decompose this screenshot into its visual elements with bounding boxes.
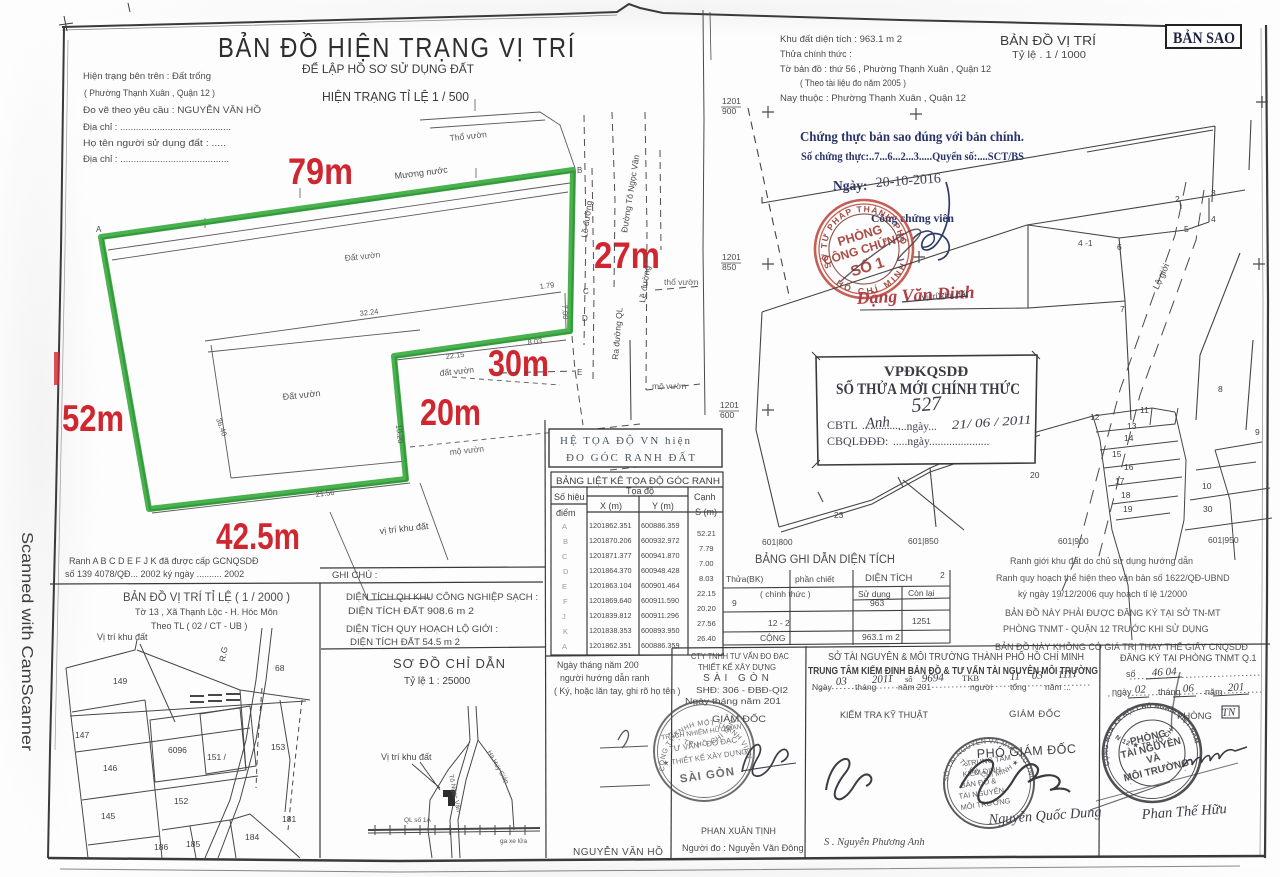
svg-text:Đo vẽ theo yêu cầu : NGUYỄN V: Đo vẽ theo yêu cầu : NGUYỄN VĂN HỒ xyxy=(83,104,261,115)
svg-text:26.40: 26.40 xyxy=(697,634,716,643)
svg-text:DIỆN TÍCH ĐẤT 54.5 m 2: DIỆN TÍCH ĐẤT 54.5 m 2 xyxy=(350,637,460,647)
svg-text:DIỆN TÍCH QH KHU CÔNG NGHIỆP S: DIỆN TÍCH QH KHU CÔNG NGHIỆP SẠCH : xyxy=(346,592,538,603)
svg-text:15: 15 xyxy=(1112,449,1122,459)
svg-text:( Phường Thạnh Xuân , Quận 12: ( Phường Thạnh Xuân , Quận 12 ) xyxy=(84,88,215,98)
svg-text:06: 06 xyxy=(1183,682,1195,695)
svg-text:CỘNG: CỘNG xyxy=(760,633,786,643)
svg-text:TRUNG TÂM KIỂM ĐỊNH BẢN ĐỒ & T: TRUNG TÂM KIỂM ĐỊNH BẢN ĐỒ & TƯ VẤN TÀI … xyxy=(808,665,1098,677)
svg-text:Ngày: Ngày xyxy=(812,682,833,692)
svg-text:D: D xyxy=(582,314,588,323)
svg-text:1201862.351: 1201862.351 xyxy=(589,641,632,650)
svg-text:C: C xyxy=(583,287,589,296)
svg-text:1.79: 1.79 xyxy=(539,280,555,291)
svg-text:600941.870: 600941.870 xyxy=(641,551,680,560)
svg-text:14: 14 xyxy=(1124,433,1134,443)
svg-text:CTY TNHH TƯ VẤN ĐO ĐẠC: CTY TNHH TƯ VẤN ĐO ĐẠC xyxy=(691,651,789,661)
svg-text:X (m): X (m) xyxy=(600,501,622,511)
svg-text:20.20: 20.20 xyxy=(697,604,716,613)
svg-text:23: 23 xyxy=(834,510,844,520)
svg-text:153: 153 xyxy=(271,742,285,752)
svg-text:850: 850 xyxy=(722,262,736,272)
svg-text:1201: 1201 xyxy=(720,400,739,410)
svg-text:Khu đất diện tích : 963.1 m: Khu đất diện tích : 963.1 m 2 xyxy=(780,34,902,44)
svg-text:601|950: 601|950 xyxy=(1208,535,1239,545)
svg-text:600901.464: 600901.464 xyxy=(641,581,680,590)
svg-text:7.79: 7.79 xyxy=(699,544,714,553)
svg-text:BẢN SAO: BẢN SAO xyxy=(1173,30,1235,47)
svg-text:CBQLĐĐĐ:: CBQLĐĐĐ: xyxy=(827,434,888,448)
svg-text:186: 186 xyxy=(154,842,168,852)
svg-text:Họ tên người sử dụng đất : ...: Họ tên người sử dụng đất : ..... xyxy=(83,138,226,148)
svg-text:1251: 1251 xyxy=(912,616,931,626)
svg-text:6: 6 xyxy=(1117,242,1122,252)
svg-text:1201869.640: 1201869.640 xyxy=(589,596,632,605)
svg-text:1201838.353: 1201838.353 xyxy=(589,626,632,635)
svg-text:03: 03 xyxy=(836,675,848,688)
svg-text:Tờ 13 , Xã Thạnh Lộc - H.: Tờ 13 , Xã Thạnh Lộc - H. Hóc Môn xyxy=(135,607,278,617)
svg-text:B: B xyxy=(577,166,582,175)
svg-text:SƠ ĐỒ CHỈ DẪN: SƠ ĐỒ CHỈ DẪN xyxy=(393,656,506,671)
svg-text:9: 9 xyxy=(732,598,737,608)
svg-text:( Ký, hoặc lăn tay, ghi rõ họ: ( Ký, hoặc lăn tay, ghi rõ họ tên ) xyxy=(554,686,681,696)
svg-text:13: 13 xyxy=(1127,421,1137,431)
svg-text:Ranh A B C D E F J K đã được c: Ranh A B C D E F J K đã được cấp GCNQSDĐ xyxy=(69,556,259,566)
svg-text:KIỂM TRA KỸ THUẬT: KIỂM TRA KỸ THUẬT xyxy=(840,709,928,721)
svg-text:A: A xyxy=(562,642,567,651)
svg-text:30m: 30m xyxy=(488,343,549,384)
svg-text:600: 600 xyxy=(720,410,734,420)
svg-text:8.03: 8.03 xyxy=(527,336,543,347)
svg-text:DIỆN TÍCH: DIỆN TÍCH xyxy=(865,573,912,584)
svg-text:2: 2 xyxy=(940,570,945,580)
svg-text:5: 5 xyxy=(1184,224,1189,234)
svg-text:S . Nguyễn Phương Anh: S . Nguyễn Phương Anh xyxy=(824,837,925,848)
svg-text:1201862.351: 1201862.351 xyxy=(589,521,632,530)
svg-text:527: 527 xyxy=(911,392,944,417)
svg-text:52m: 52m xyxy=(62,398,124,439)
svg-text:11: 11 xyxy=(1140,405,1149,415)
svg-text:mộ vườn: mộ vườn xyxy=(652,381,687,391)
svg-text:ĐO GÓC RANH ĐẤT: ĐO GÓC RANH ĐẤT xyxy=(566,451,697,464)
svg-text:20: 20 xyxy=(1030,470,1040,480)
svg-text:số: số xyxy=(1126,669,1136,679)
svg-text:Thửa chính thức :: Thửa chính thức : xyxy=(780,49,852,59)
svg-text:7: 7 xyxy=(1120,304,1125,314)
svg-text:600886.359: 600886.359 xyxy=(641,521,680,530)
svg-text:30: 30 xyxy=(1203,504,1213,514)
svg-text:1201870.206: 1201870.206 xyxy=(589,536,632,545)
svg-text:ga xe lửa: ga xe lửa xyxy=(500,837,528,845)
svg-text:người hướng dẫn ranh: người hướng dẫn ranh xyxy=(560,673,649,683)
svg-text:900: 900 xyxy=(722,106,736,116)
svg-text:BẢN ĐỒ NÀY PHẢI ĐƯỢC ĐĂNG KÝ T: BẢN ĐỒ NÀY PHẢI ĐƯỢC ĐĂNG KÝ TẠI SỞ TN-M… xyxy=(1005,607,1221,618)
svg-text:...ngày...: ...ngày... xyxy=(898,421,937,433)
svg-text:HIỆN TRẠNG TỈ LỆ 1 / 500: HIỆN TRẠNG TỈ LỆ 1 / 500 xyxy=(322,89,469,104)
svg-text:20m: 20m xyxy=(420,392,481,433)
svg-text:601|800: 601|800 xyxy=(762,537,793,547)
svg-text:4: 4 xyxy=(1211,214,1216,224)
svg-text:Chứng thực bản sao đúng với bả: Chứng thực bản sao đúng với bản chính. xyxy=(800,130,1024,145)
svg-text:QL số 1A: QL số 1A xyxy=(404,815,432,824)
svg-text:GIÁM ĐỐC: GIÁM ĐỐC xyxy=(1009,708,1061,720)
svg-text:184: 184 xyxy=(245,832,259,842)
svg-text:151 /: 151 / xyxy=(207,752,227,762)
svg-text:BẢN ĐỒ VỊ TRÍ TỈ LỆ ( 1 / 2000: BẢN ĐỒ VỊ TRÍ TỈ LỆ ( 1 / 2000 ) xyxy=(123,591,290,604)
svg-text:19: 19 xyxy=(1123,504,1133,514)
svg-text:Vị trí khu đất: Vị trí khu đất xyxy=(381,752,432,762)
svg-text:1201871.377: 1201871.377 xyxy=(589,551,632,560)
svg-text:F: F xyxy=(563,597,568,606)
svg-text:10: 10 xyxy=(1202,481,1212,491)
svg-text:181: 181 xyxy=(282,814,296,824)
svg-text:963.1 m 2: 963.1 m 2 xyxy=(862,632,900,642)
svg-text:600911.590: 600911.590 xyxy=(641,596,679,605)
svg-text:DIỆN TÍCH QUY HOẠCH LỘ GIỚI :: DIỆN TÍCH QUY HOẠCH LỘ GIỚI : xyxy=(346,624,498,635)
svg-text:A: A xyxy=(96,225,102,234)
svg-text:Tỷ lệ 1 : 25000: Tỷ lệ 1 : 25000 xyxy=(404,675,471,687)
svg-text:145: 145 xyxy=(101,811,115,821)
svg-text:tháng: tháng xyxy=(1158,687,1181,697)
svg-text:1201864.370: 1201864.370 xyxy=(589,566,632,575)
svg-text:Tỷ lệ . 1 / 1000: Tỷ lệ . 1 / 1000 xyxy=(1012,49,1086,61)
svg-text:K: K xyxy=(563,627,568,636)
svg-text:( chính thức ): ( chính thức ) xyxy=(760,589,811,599)
svg-text:CBTL: CBTL xyxy=(827,418,858,432)
svg-text:Ranh quy hoạch thể hiện theo v: Ranh quy hoạch thể hiện theo văn bản số … xyxy=(996,573,1230,583)
svg-text:185: 185 xyxy=(186,839,200,849)
svg-text:điểm: điểm xyxy=(556,508,576,518)
svg-text:( Theo tài liệu đo năm 2005 ): ( Theo tài liệu đo năm 2005 ) xyxy=(800,78,906,88)
svg-text:SỞ TÀI NGUYÊN & MÔI TRƯỜNG: SỞ TÀI NGUYÊN & MÔI TRƯỜNG THÀNH PHỐ HỒ … xyxy=(828,649,1084,663)
svg-text:600893.950: 600893.950 xyxy=(641,626,680,635)
svg-text:PHÒNG TNMT - QUẬN 12 TRƯỚC KHI: PHÒNG TNMT - QUẬN 12 TRƯỚC KHI SỬ DỤNG xyxy=(1003,623,1209,634)
svg-text:VPĐKQSDĐ: VPĐKQSDĐ xyxy=(884,364,968,380)
svg-text:149: 149 xyxy=(113,676,127,686)
svg-text:số: số xyxy=(905,674,913,684)
svg-text:7.00: 7.00 xyxy=(560,304,570,319)
svg-text:Vị trí khu đất: Vị trí khu đất xyxy=(97,632,148,642)
svg-text:7.00: 7.00 xyxy=(699,559,714,568)
svg-text:GHI CHÚ :: GHI CHÚ : xyxy=(332,570,377,581)
svg-text:9: 9 xyxy=(1255,427,1260,437)
svg-text:17: 17 xyxy=(1115,476,1125,486)
svg-text:1201839.812: 1201839.812 xyxy=(589,611,632,620)
svg-text:2: 2 xyxy=(1175,194,1180,204)
svg-text:Thửa(BK): Thửa(BK) xyxy=(726,574,764,584)
svg-text:9694: 9694 xyxy=(922,672,945,685)
svg-text:6096: 6096 xyxy=(168,745,187,755)
svg-text:18: 18 xyxy=(1121,490,1131,500)
svg-text:số 139 4078/QĐ... 2002 ký: số 139 4078/QĐ... 2002 ký ngày .........… xyxy=(65,569,244,579)
svg-text:THIẾT KẾ XÂY DỰNG: THIẾT KẾ XÂY DỰNG xyxy=(698,662,776,672)
svg-text:Tọa độ: Tọa độ xyxy=(626,486,654,496)
svg-text:03: 03 xyxy=(1032,669,1044,682)
svg-text:ký ngày 19/12/2006 quy h: ký ngày 19/12/2006 quy hoạch tỉ lệ 1/200… xyxy=(1018,589,1187,599)
svg-text:Địa chỉ : ....................: Địa chỉ : ..............................… xyxy=(83,154,229,164)
svg-text:Cạnh: Cạnh xyxy=(694,492,716,502)
svg-text:Ngày tháng năm 200: Ngày tháng năm 200 xyxy=(557,660,639,670)
svg-text:22.15: 22.15 xyxy=(697,589,716,598)
svg-text:600886.359: 600886.359 xyxy=(641,641,680,650)
svg-text:E: E xyxy=(562,582,567,591)
svg-text:152: 152 xyxy=(174,796,188,806)
svg-text:BẢNG GHI DẪN DIỆN TÍCH: BẢNG GHI DẪN DIỆN TÍCH xyxy=(755,553,895,566)
svg-text:963: 963 xyxy=(870,598,884,608)
svg-text:Anh: Anh xyxy=(864,414,890,432)
svg-text:BẢN ĐỒ NÀY KHÔNG CÓ GIÁ TRỊ TH: BẢN ĐỒ NÀY KHÔNG CÓ GIÁ TRỊ THAY THẾ GIẤ… xyxy=(995,641,1248,652)
svg-text:1111: 1111 xyxy=(1058,668,1078,681)
svg-text:Ranh giới khu đất do chủ sử dụ: Ranh giới khu đất do chủ sử dụng hướng d… xyxy=(1010,556,1193,566)
svg-text:600911.296: 600911.296 xyxy=(641,611,679,620)
svg-text:27.56: 27.56 xyxy=(697,619,716,628)
svg-text:Số chứng thực:..7...6...2...3.: Số chứng thực:..7...6...2...3.....Quyển … xyxy=(801,149,1024,163)
svg-text:TN: TN xyxy=(1222,706,1237,719)
svg-text:Y (m): Y (m) xyxy=(652,501,674,511)
svg-text:1201: 1201 xyxy=(722,252,741,262)
svg-text:E: E xyxy=(577,368,582,377)
svg-text:600948.428: 600948.428 xyxy=(641,566,680,575)
svg-text:12: 12 xyxy=(1090,412,1100,422)
svg-text:600932.972: 600932.972 xyxy=(641,536,680,545)
svg-text:S (m): S (m) xyxy=(695,507,717,517)
svg-text:201: 201 xyxy=(1228,681,1245,694)
svg-text:J: J xyxy=(562,612,566,621)
svg-text:Còn lại: Còn lại xyxy=(908,588,935,598)
svg-text:B: B xyxy=(563,537,568,546)
svg-text:8: 8 xyxy=(1218,384,1223,394)
svg-text:52.21: 52.21 xyxy=(697,529,716,538)
svg-text:Số hiệu: Số hiệu xyxy=(554,492,585,502)
svg-text:601|900: 601|900 xyxy=(1058,536,1089,546)
svg-text:68: 68 xyxy=(275,663,285,673)
svg-text:Địa chỉ : ....................: Địa chỉ : ..............................… xyxy=(83,122,231,132)
svg-text:A: A xyxy=(562,522,567,531)
svg-text:2011: 2011 xyxy=(872,673,894,686)
svg-text:11: 11 xyxy=(1010,670,1021,683)
svg-text:C: C xyxy=(562,552,568,561)
svg-text:1201: 1201 xyxy=(722,96,741,106)
svg-text:TKB: TKB xyxy=(962,673,979,683)
svg-text:Người đo : Nguyễn Văn Đông|: Người đo : Nguyễn Văn Đông| xyxy=(682,843,806,853)
svg-text:146: 146 xyxy=(103,763,117,773)
svg-text:02: 02 xyxy=(1135,683,1147,696)
svg-text:12 - 2: 12 - 2 xyxy=(768,618,790,628)
svg-text:4 -1: 4 -1 xyxy=(1078,238,1093,248)
svg-text:Tờ bản đồ : thứ 56 , Phường: Tờ bản đồ : thứ 56 , Phường Thạnh Xuân ,… xyxy=(780,64,991,74)
svg-text:tổng: tổng xyxy=(1010,682,1027,692)
svg-text:8.03: 8.03 xyxy=(699,574,714,583)
svg-text:thổ vườn: thổ vườn xyxy=(664,277,699,287)
svg-text:SÀI GÒN: SÀI GÒN xyxy=(703,671,773,684)
svg-text:16: 16 xyxy=(1124,462,1134,472)
svg-text:1201863.104: 1201863.104 xyxy=(589,581,632,590)
svg-text:DIỆN TÍCH ĐẤT 908.6 m 2: DIỆN TÍCH ĐẤT 908.6 m 2 xyxy=(348,606,474,616)
svg-text:NGUYỄN VĂN HỒ: NGUYỄN VĂN HỒ xyxy=(573,845,663,858)
svg-text:năm ...: năm ... xyxy=(1045,682,1071,692)
svg-text:3: 3 xyxy=(1211,188,1216,198)
svg-text:Hiện trạng bên trên : Đất trốn: Hiện trạng bên trên : Đất trống xyxy=(83,71,211,81)
svg-text:ĐĂNG KÝ TẠI PHÒNG TNMT Q.1: ĐĂNG KÝ TẠI PHÒNG TNMT Q.1 xyxy=(1120,653,1257,663)
svg-text:147: 147 xyxy=(75,730,89,740)
svg-text:BẢN ĐỒ VỊ TRÍ: BẢN ĐỒ VỊ TRÍ xyxy=(1000,33,1096,48)
svg-text:PHAN XUÂN TỊNH: PHAN XUÂN TỊNH xyxy=(701,826,776,836)
svg-text:79m: 79m xyxy=(288,151,353,192)
svg-text:BẢN ĐỒ HIỆN TRẠNG VỊ TRÍ: BẢN ĐỒ HIỆN TRẠNG VỊ TRÍ xyxy=(218,31,576,63)
svg-text:ĐỂ LẬP HỒ SƠ SỬ DỤNG ĐẤT: ĐỂ LẬP HỒ SƠ SỬ DỤNG ĐẤT xyxy=(302,61,475,76)
svg-text:Theo TL ( 02 / CT - UB ): Theo TL ( 02 / CT - UB ) xyxy=(151,621,247,631)
svg-text:.....ngày.....................: .....ngày..................... xyxy=(893,436,989,448)
svg-text:Nay thuộc : Phường Thạnh Xuâ: Nay thuộc : Phường Thạnh Xuân , Quận 12 xyxy=(780,93,966,103)
svg-text:42.5m: 42.5m xyxy=(216,516,300,557)
svg-text:ngày: ngày xyxy=(1112,687,1132,697)
svg-text:HỆ TỌA ĐỘ VN hiện: HỆ TỌA ĐỘ VN hiện xyxy=(560,435,692,447)
svg-text:D: D xyxy=(563,567,569,576)
svg-text:601|850: 601|850 xyxy=(908,536,939,546)
svg-text:SHĐ: 306 - ĐBĐ-QI2: SHĐ: 306 - ĐBĐ-QI2 xyxy=(696,685,788,695)
svg-text:Scanned with CamScanner: Scanned with CamScanner xyxy=(18,532,35,751)
svg-text:phần chiết: phần chiết xyxy=(795,574,835,584)
